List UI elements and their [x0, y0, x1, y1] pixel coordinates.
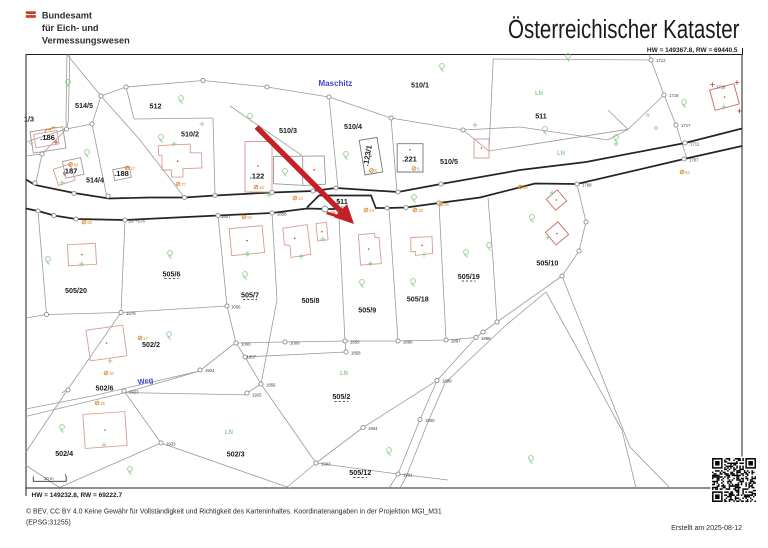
svg-text:1858: 1858	[277, 212, 287, 217]
svg-text:14: 14	[298, 196, 303, 201]
svg-text:1/3: 1/3	[24, 115, 34, 124]
svg-text:505/9: 505/9	[358, 305, 376, 314]
svg-text:1859: 1859	[350, 340, 360, 345]
svg-text:1712: 1712	[656, 58, 666, 63]
svg-text:26: 26	[100, 401, 105, 406]
svg-text:510/2: 510/2	[181, 130, 199, 139]
svg-text:94: 94	[247, 215, 252, 220]
svg-text:1903: 1903	[321, 462, 331, 467]
svg-text:511: 511	[535, 112, 547, 121]
svg-text:1897: 1897	[451, 339, 461, 344]
svg-text:505/7: 505/7	[241, 290, 259, 299]
svg-text:für Eich- und: für Eich- und	[42, 23, 99, 33]
svg-text:HW = 149367.8, RW = 69440.5: HW = 149367.8, RW = 69440.5	[647, 47, 738, 54]
svg-text:Vermessungswesen: Vermessungswesen	[42, 35, 130, 45]
svg-text:512: 512	[150, 102, 162, 111]
svg-text:505/12: 505/12	[349, 468, 371, 477]
svg-text:502/6: 502/6	[96, 384, 114, 393]
svg-text:Maschitz: Maschitz	[319, 79, 353, 88]
svg-text:1896: 1896	[403, 340, 413, 345]
svg-text:1899: 1899	[442, 379, 452, 384]
svg-text:505/10: 505/10	[536, 259, 558, 268]
svg-text:1717: 1717	[681, 123, 691, 128]
svg-text:1056: 1056	[231, 305, 241, 310]
svg-text:187+576: 187+576	[128, 219, 145, 224]
svg-text:1716: 1716	[716, 85, 726, 90]
svg-text:1858: 1858	[351, 351, 361, 356]
svg-text:16: 16	[259, 185, 264, 190]
svg-text:30: 30	[418, 208, 423, 213]
svg-text:505/20: 505/20	[65, 286, 87, 295]
svg-text:.221: .221	[402, 155, 418, 164]
svg-text:1768: 1768	[582, 183, 592, 188]
svg-text:1711: 1711	[690, 142, 700, 147]
svg-text:26: 26	[523, 185, 528, 190]
svg-text:505/2: 505/2	[332, 392, 350, 401]
svg-text:505/6: 505/6	[163, 269, 181, 278]
svg-text:10 m: 10 m	[44, 476, 54, 481]
svg-text:64: 64	[685, 170, 690, 175]
svg-text:1901: 1901	[403, 473, 413, 478]
svg-text:1933: 1933	[166, 442, 176, 447]
svg-text:© BEV, CC BY 4.0 Keine Gewähr: © BEV, CC BY 4.0 Keine Gewähr für Vollst…	[26, 508, 442, 516]
svg-text:.188: .188	[114, 169, 129, 178]
svg-text:Bundesamt: Bundesamt	[42, 11, 92, 21]
svg-text:1857: 1857	[247, 355, 257, 360]
svg-text:20: 20	[109, 371, 114, 376]
svg-text:24: 24	[369, 208, 374, 213]
svg-text:1924: 1924	[205, 368, 215, 373]
svg-text:Erstellt am 2025-08-12: Erstellt am 2025-08-12	[671, 525, 742, 532]
svg-text:502/4: 502/4	[55, 449, 73, 458]
svg-text:502/2: 502/2	[142, 340, 160, 349]
svg-text:36: 36	[444, 202, 449, 207]
svg-text:505/19: 505/19	[458, 272, 480, 281]
svg-text:510/3: 510/3	[279, 126, 297, 135]
svg-text:1060: 1060	[241, 342, 251, 347]
svg-text:502/3: 502/3	[227, 450, 245, 459]
svg-text:77: 77	[181, 182, 186, 187]
svg-text:1718: 1718	[669, 93, 679, 98]
svg-text:1707: 1707	[689, 158, 699, 163]
svg-text:1856: 1856	[266, 383, 276, 388]
svg-text:1904: 1904	[368, 426, 378, 431]
svg-text:HW = 149232.8, RW = 69222.7: HW = 149232.8, RW = 69222.7	[32, 492, 123, 499]
svg-text:1009: 1009	[290, 341, 300, 346]
svg-text:1925: 1925	[252, 393, 262, 398]
svg-text:1898: 1898	[481, 336, 491, 341]
svg-text:n: n	[646, 113, 650, 119]
svg-text:514/5: 514/5	[75, 101, 93, 110]
svg-text:1923: 1923	[129, 390, 139, 395]
svg-text:(EPSG:31255): (EPSG:31255)	[26, 520, 71, 527]
svg-text:1857: 1857	[221, 214, 231, 219]
svg-text:Österreichischer Kataster: Österreichischer Kataster	[508, 15, 740, 44]
svg-text:.122: .122	[250, 172, 265, 181]
svg-text:510/1: 510/1	[411, 81, 429, 90]
svg-text:.187: .187	[63, 167, 78, 176]
svg-text:LN: LN	[557, 151, 565, 157]
svg-text:LN: LN	[535, 91, 543, 97]
svg-text:1579: 1579	[126, 311, 136, 316]
svg-text:510/5: 510/5	[440, 157, 458, 166]
svg-text:1900: 1900	[425, 418, 435, 423]
svg-text:17: 17	[130, 166, 135, 171]
svg-text:88: 88	[87, 220, 92, 225]
svg-text:514/4: 514/4	[86, 176, 104, 185]
svg-text:.186: .186	[40, 133, 55, 142]
svg-text:505/18: 505/18	[407, 295, 429, 304]
svg-text:505/8: 505/8	[302, 296, 320, 305]
svg-text:LN: LN	[340, 371, 348, 377]
svg-text:510/4: 510/4	[344, 122, 362, 131]
svg-text:LN: LN	[225, 430, 233, 436]
